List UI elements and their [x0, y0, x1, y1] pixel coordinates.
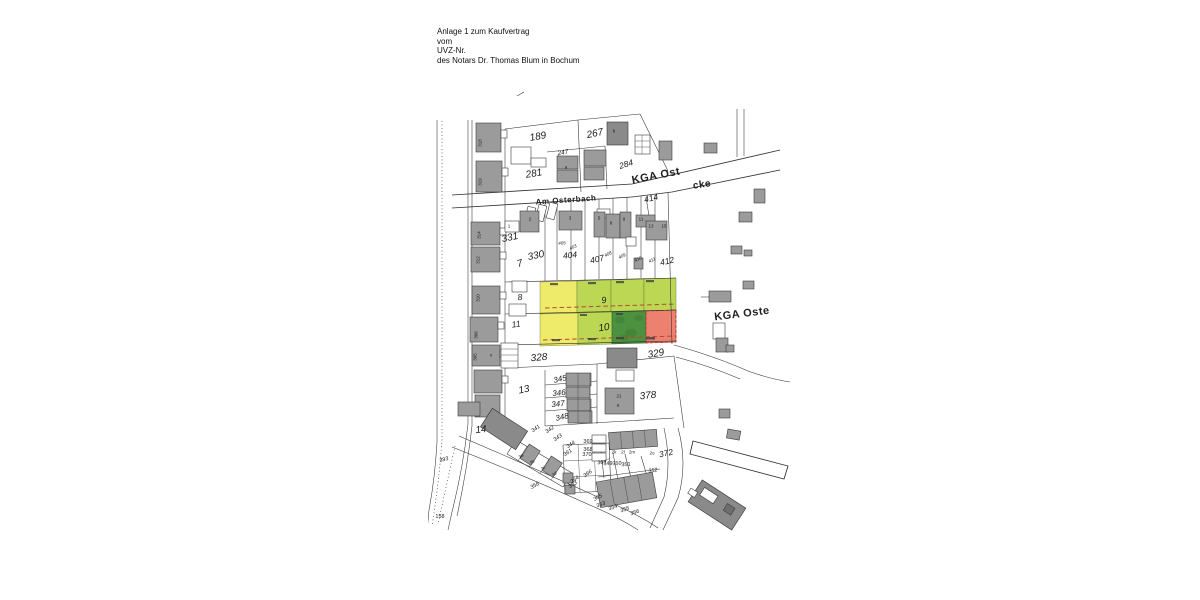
header-line: des Notars Dr. Thomas Blum in Bochum	[437, 56, 580, 66]
document-header: Anlage 1 zum Kaufvertrag vom UVZ-Nr. des…	[437, 27, 580, 65]
highlighted-parcels	[540, 278, 676, 346]
header-line: UVZ-Nr.	[437, 46, 580, 56]
header-line: vom	[437, 37, 580, 47]
scanned-document-page: Anlage 1 zum Kaufvertrag vom UVZ-Nr. des…	[0, 0, 1200, 600]
cadastral-map: Am OsterbachKGA OstckeKGA Oste1892672472…	[428, 80, 800, 545]
cadastral-map-drawing	[428, 80, 800, 545]
header-line: Anlage 1 zum Kaufvertrag	[437, 27, 580, 37]
